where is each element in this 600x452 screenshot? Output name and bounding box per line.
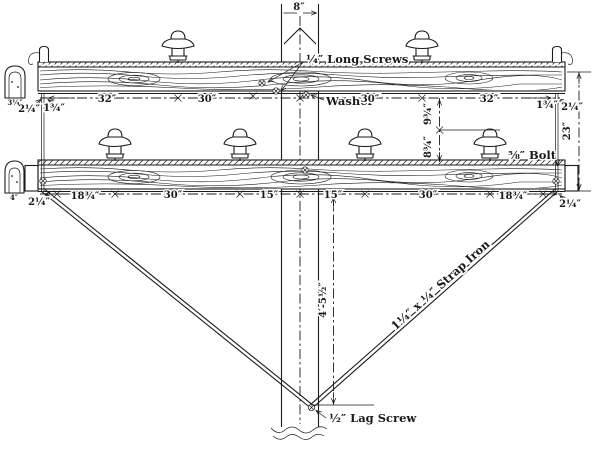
section-lower-width: 4″ xyxy=(10,193,18,202)
gap-lower-label: 8¾″ xyxy=(423,136,434,158)
washer-mark xyxy=(303,92,309,98)
upper-seg3: 30″ xyxy=(361,94,380,105)
bolt-label: ⅝″ Bolt xyxy=(508,148,557,162)
lower-end-left: 2¼″ xyxy=(28,197,50,208)
lower-seg5: 30″ xyxy=(419,190,438,201)
long-screw-mark xyxy=(259,80,265,86)
upper-seg1: 32″ xyxy=(98,94,117,105)
lower-seg3: 15″ xyxy=(260,190,279,201)
hardware-callouts xyxy=(250,62,558,418)
insulator xyxy=(99,129,131,161)
center-bolt-mark xyxy=(302,167,308,173)
strap-end-cap-left xyxy=(25,166,38,192)
lower-seg1: 18¾″ xyxy=(71,191,100,202)
diagram-canvas: 8″ ¼″ Long Screws Washer ⅝″ Bolt ½″ Lag … xyxy=(0,0,600,452)
lower-end-right: 2¼″ xyxy=(559,199,581,210)
arm-section-upper xyxy=(5,66,25,98)
pole-width-label: 8″ xyxy=(293,2,305,13)
section-upper-width: 3¼″ xyxy=(7,98,22,107)
lag-screw-label: ½″ Lag Screw xyxy=(329,411,417,425)
insulator xyxy=(474,129,506,161)
upper-crossarm xyxy=(38,62,565,94)
strap-iron-label: 1¼″ x ¼″ Strap Iron xyxy=(388,237,493,333)
upper-end-right-inner: 1¾″ xyxy=(536,100,558,111)
insulator xyxy=(224,129,256,161)
lower-seg4: 15″ xyxy=(324,190,343,201)
strap-iron xyxy=(40,178,559,411)
upper-end-left-inner: 1¾″ xyxy=(43,103,65,114)
hook-bolt-left xyxy=(40,47,49,63)
hook-bolt-right xyxy=(553,47,562,63)
upper-end-right-outer: 2¼″ xyxy=(561,102,583,113)
upper-seg4: 32″ xyxy=(480,94,499,105)
crossarm-construction-diagram: 8″ ¼″ Long Screws Washer ⅝″ Bolt ½″ Lag … xyxy=(0,0,600,452)
insulator xyxy=(162,31,194,63)
insulator xyxy=(349,129,381,161)
lower-seg2: 30″ xyxy=(164,190,183,201)
drop-dim-label: 4′-5½″ xyxy=(318,282,329,318)
lower-seg6: 18¾″ xyxy=(499,191,528,202)
strap-end-cap-right xyxy=(565,166,578,192)
pole-break-line xyxy=(271,427,327,440)
strap-bolt-right xyxy=(553,178,559,184)
insulators xyxy=(99,31,506,161)
lower-crossarm xyxy=(25,160,578,192)
insulator xyxy=(406,31,438,63)
dimension-lines xyxy=(33,72,591,405)
overall-right-label: 23″ xyxy=(562,121,573,140)
gap-upper-label: 9¾″ xyxy=(423,103,434,125)
strap-bolt-left xyxy=(40,178,46,184)
long-screw-mark xyxy=(273,88,279,94)
arm-section-lower xyxy=(5,161,24,193)
upper-seg2: 30″ xyxy=(198,94,217,105)
long-screws-label: ¼″ Long Screws xyxy=(306,52,408,66)
